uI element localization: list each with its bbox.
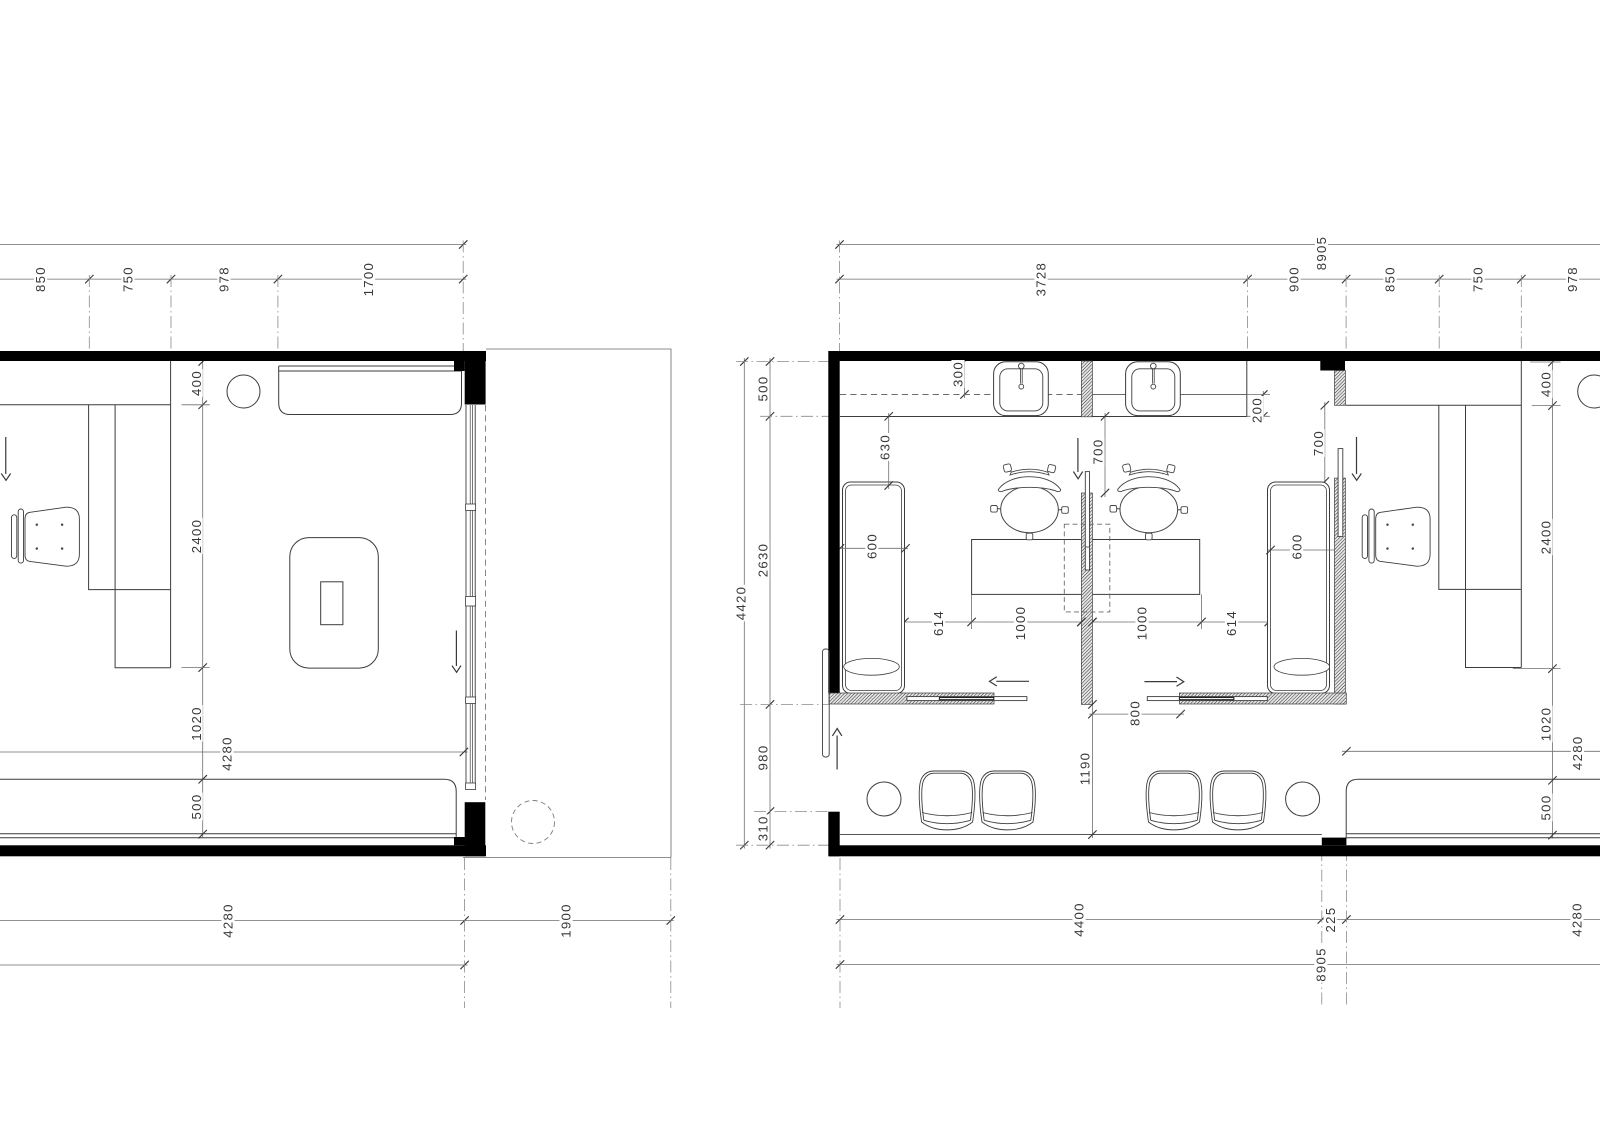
svg-text:750: 750	[121, 266, 136, 292]
svg-text:614: 614	[931, 610, 946, 636]
svg-text:2400: 2400	[1539, 520, 1554, 555]
svg-text:850: 850	[33, 266, 48, 292]
svg-text:1190: 1190	[1078, 752, 1093, 786]
svg-text:1020: 1020	[1539, 707, 1554, 742]
svg-text:978: 978	[217, 266, 232, 292]
svg-text:630: 630	[878, 434, 893, 460]
svg-text:500: 500	[1539, 795, 1554, 821]
svg-text:400: 400	[189, 370, 204, 396]
svg-text:4280: 4280	[1570, 736, 1585, 771]
svg-text:1900: 1900	[559, 903, 574, 938]
svg-text:4280: 4280	[1570, 902, 1585, 937]
svg-text:700: 700	[1091, 439, 1106, 465]
svg-text:310: 310	[756, 815, 771, 841]
svg-text:500: 500	[189, 794, 204, 820]
svg-text:8905: 8905	[1314, 947, 1329, 982]
svg-text:978: 978	[1565, 266, 1580, 292]
svg-text:750: 750	[1471, 266, 1486, 292]
svg-text:1020: 1020	[189, 706, 204, 741]
svg-text:2630: 2630	[756, 543, 771, 578]
svg-text:8905: 8905	[1314, 236, 1329, 271]
svg-text:4420: 4420	[734, 586, 749, 621]
svg-text:614: 614	[1224, 610, 1239, 636]
svg-text:1000: 1000	[1135, 606, 1150, 641]
svg-text:900: 900	[1287, 266, 1302, 292]
svg-text:600: 600	[1289, 534, 1304, 560]
svg-text:700: 700	[1311, 430, 1326, 456]
svg-text:400: 400	[1539, 371, 1554, 397]
svg-text:1000: 1000	[1013, 606, 1028, 641]
svg-text:980: 980	[756, 745, 771, 771]
svg-text:3728: 3728	[1034, 262, 1049, 297]
svg-text:4400: 4400	[1072, 902, 1087, 937]
svg-text:300: 300	[951, 361, 966, 387]
svg-text:600: 600	[865, 533, 880, 559]
svg-text:800: 800	[1128, 700, 1143, 726]
svg-text:2400: 2400	[189, 519, 204, 554]
svg-text:850: 850	[1383, 266, 1398, 292]
svg-text:200: 200	[1250, 397, 1265, 423]
svg-text:4280: 4280	[220, 736, 235, 771]
svg-text:1700: 1700	[361, 262, 376, 297]
svg-text:4280: 4280	[221, 903, 236, 938]
svg-text:225: 225	[1323, 907, 1338, 933]
svg-text:500: 500	[756, 376, 771, 402]
